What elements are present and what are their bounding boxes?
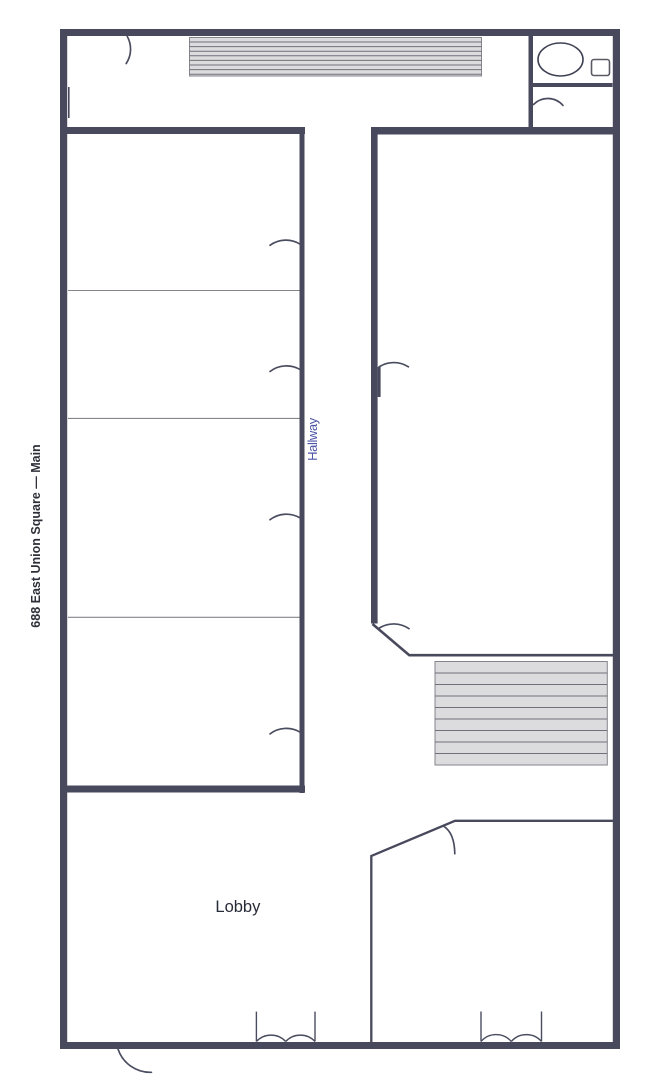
svg-text:688 East Union Square — Main: 688 East Union Square — Main — [29, 444, 43, 627]
svg-text:Hallway: Hallway — [305, 417, 320, 461]
svg-text:Lobby: Lobby — [215, 898, 261, 916]
